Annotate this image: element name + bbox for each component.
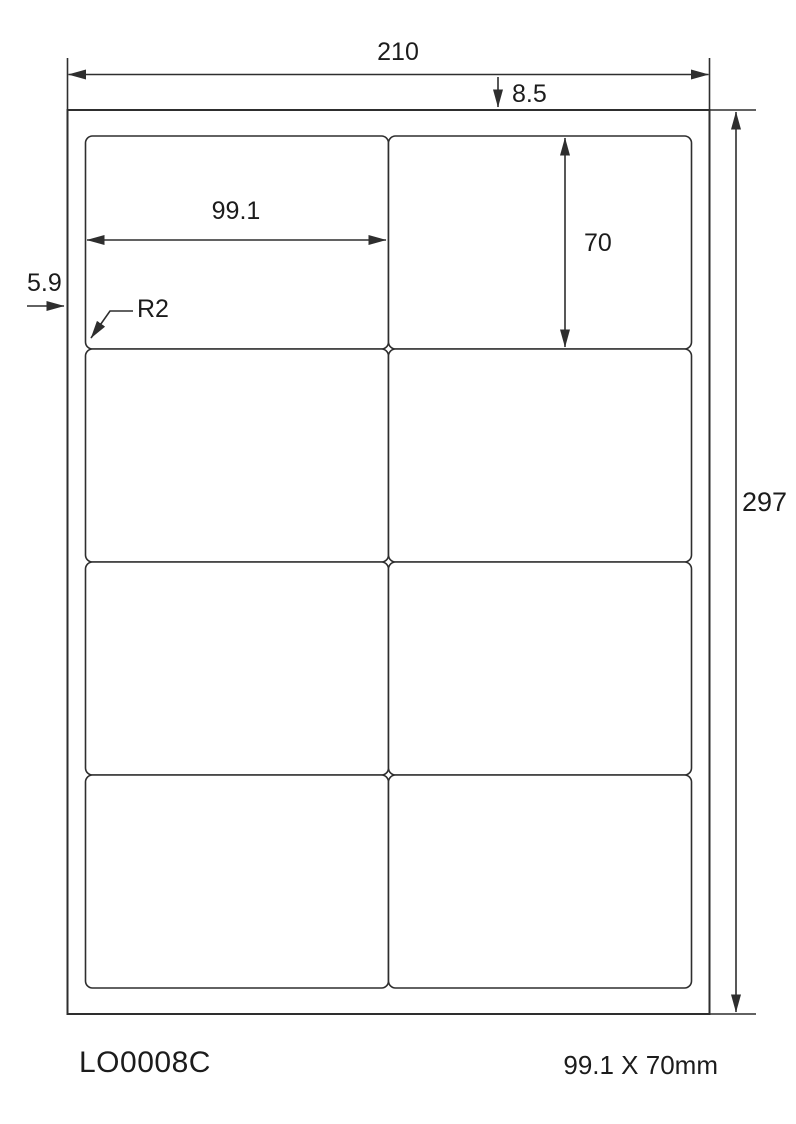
corner-radius-label: R2 bbox=[137, 297, 169, 322]
label-cell bbox=[389, 775, 692, 988]
label-size-text: 99.1 X 70mm bbox=[563, 1052, 718, 1078]
label-cell bbox=[86, 136, 389, 349]
dim-page-width-value: 210 bbox=[323, 40, 473, 65]
dim-side-margin-value: 5.9 bbox=[27, 271, 62, 296]
dim-page-height-value: 297 bbox=[742, 489, 787, 516]
dim-label-height-value: 70 bbox=[584, 231, 612, 256]
label-cell bbox=[86, 775, 389, 988]
diagram-drawing bbox=[0, 0, 796, 1124]
label-cell bbox=[86, 349, 389, 562]
label-grid bbox=[86, 136, 692, 988]
label-template-diagram: 210 8.5 5.9 R2 99.1 70 297 LO0008C 99.1 … bbox=[0, 0, 796, 1124]
label-cell bbox=[389, 136, 692, 349]
label-cell bbox=[389, 349, 692, 562]
dim-top-margin-value: 8.5 bbox=[512, 82, 547, 107]
label-cell bbox=[86, 562, 389, 775]
label-cell bbox=[389, 562, 692, 775]
dim-label-width-value: 99.1 bbox=[161, 199, 311, 224]
product-code: LO0008C bbox=[79, 1048, 211, 1078]
